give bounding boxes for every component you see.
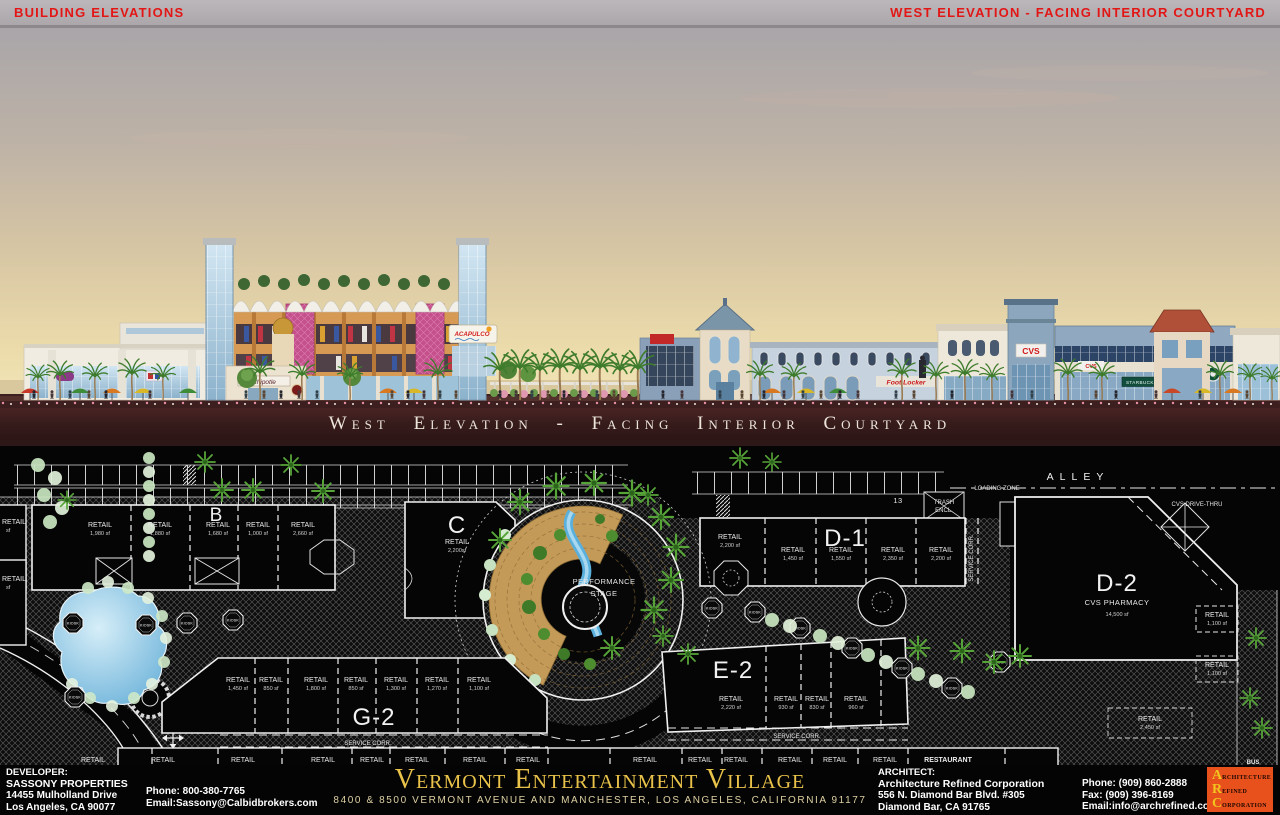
parking-count: 13 [893,496,902,505]
svg-text:1,100 sf: 1,100 sf [1207,621,1227,627]
svg-text:RETAIL: RETAIL [1205,662,1229,669]
svg-text:RETAIL: RETAIL [246,522,270,529]
building-g2 [162,658,548,747]
svg-text:RETAIL: RETAIL [425,677,449,684]
stage-label-2: STAGE [591,589,618,598]
architect-email: Email:info@archrefined.com [1082,801,1218,813]
architect-block: ARCHITECT: Architecture Refined Corporat… [878,767,1044,813]
svg-text:RETAIL: RETAIL [405,757,429,764]
svg-text:2,200sf: 2,200sf [448,548,467,554]
svg-text:930 sf: 930 sf [778,705,794,711]
architect-phone: Phone: (909) 860-2888 [1082,778,1218,790]
svg-text:1,450 sf: 1,450 sf [228,686,248,692]
logo-letter-c: C [1212,796,1222,812]
svg-text:RETAIL: RETAIL [81,757,105,764]
architect-address2: Diamond Bar, CA 91765 [878,802,1044,814]
svg-text:1,800 sf: 1,800 sf [306,686,326,692]
cvs-tower-sign: CVS [1022,346,1040,356]
project-subtitle: 8400 & 8500 VERMONT AVENUE AND MANCHESTE… [330,795,870,807]
red-sign [650,334,674,344]
svg-text:RETAIL: RETAIL [304,677,328,684]
svg-text:RETAIL: RETAIL [1205,612,1229,619]
svg-text:1,270 sf: 1,270 sf [427,686,447,692]
header-left-title: BUILDING ELEVATIONS [14,5,184,20]
svg-text:1,100 sf: 1,100 sf [1207,671,1227,677]
building-b [32,505,354,590]
svg-text:sf: sf [6,528,11,534]
building-d2-label: D-2 [1096,570,1138,597]
alley: ALLEY LOADING ZONE [944,448,1280,497]
svg-text:RETAIL: RETAIL [688,757,712,764]
svg-text:RETAIL: RETAIL [360,757,384,764]
alley-label: ALLEY [1047,471,1110,483]
site-plan: KIOSK 13 [0,440,1280,765]
restaurant-label: RESTAURANT [924,757,972,764]
svg-text:RETAIL: RETAIL [226,677,250,684]
svg-text:ACAPULCO: ACAPULCO [453,331,489,338]
developer-phone: Phone: 800-380-7765 [146,786,317,798]
svg-text:2,200 sf: 2,200 sf [720,543,740,549]
svg-text:850 sf: 850 sf [263,686,279,692]
svg-text:RETAIL: RETAIL [259,677,283,684]
footlocker-sign: Foot Locker [887,380,926,387]
svg-text:RETAIL: RETAIL [445,539,469,546]
svg-text:1,880 sf: 1,880 sf [150,531,170,537]
svg-text:RETAIL: RETAIL [2,576,26,583]
developer-contact-block: Phone: 800-380-7765 Email:Sassony@Calbid… [146,786,317,809]
architect-address1: 556 N. Diamond Bar Blvd. #305 [878,790,1044,802]
drive-thru-label: CVS DRIVE-THRU [1171,502,1222,508]
building-g2-label: G-2 [352,704,395,731]
svg-text:1,550 sf: 1,550 sf [831,556,851,562]
svg-text:1,450 sf: 1,450 sf [783,556,803,562]
svg-text:RETAIL: RETAIL [633,757,657,764]
svg-text:RETAIL: RETAIL [1138,716,1162,723]
loading-zone-label: LOADING ZONE [974,486,1019,492]
project-title-block: Vermont Entertainment Village 8400 & 850… [330,765,870,807]
trash-enclosure: TRASH ENCL. [924,492,964,520]
architect-fax: Fax: (909) 396-8169 [1082,790,1218,802]
svg-text:ENCL.: ENCL. [935,508,953,514]
building-c-label: C [448,512,466,539]
svg-text:2,220 sf: 2,220 sf [721,705,741,711]
svg-text:sf: sf [6,585,11,591]
svg-text:850 sf: 850 sf [348,686,364,692]
svg-text:RETAIL: RETAIL [467,677,491,684]
svg-text:SERVICE CORR.: SERVICE CORR. [773,734,821,740]
svg-text:RETAIL: RETAIL [344,677,368,684]
chipotle-medallion-icon [292,385,303,396]
classical-building [936,324,1012,400]
svg-text:RETAIL: RETAIL [719,696,743,703]
svg-text:RETAIL: RETAIL [463,757,487,764]
service-corridor-label-d1: SERVICE CORR. [969,534,975,582]
svg-text:RETAIL: RETAIL [781,547,805,554]
bottom-retail-row [118,748,1058,765]
developer-email: Email:Sassony@Calbidbrokers.com [146,798,317,810]
architect-heading: ARCHITECT: [878,767,1044,779]
svg-text:2,200 sf: 2,200 sf [931,556,951,562]
svg-text:RETAIL: RETAIL [291,522,315,529]
svg-text:RETAIL: RETAIL [88,522,112,529]
elevation-caption-banner: West Elevation - Facing Interior Courtya… [0,408,1280,440]
svg-text:RETAIL: RETAIL [778,757,802,764]
svg-text:RETAIL: RETAIL [384,677,408,684]
svg-text:RETAIL: RETAIL [516,757,540,764]
d1-plaza-octagon [714,561,748,595]
svg-text:RETAIL: RETAIL [805,696,829,703]
svg-text:SERVICE CORR.: SERVICE CORR. [344,741,392,747]
round-plaza [858,578,906,626]
svg-text:RETAIL: RETAIL [151,757,175,764]
arc-logo: ARCHITECTURE REFINED CORPORATION [1207,767,1273,812]
svg-text:960 sf: 960 sf [848,705,864,711]
svg-text:RETAIL: RETAIL [724,757,748,764]
svg-text:RETAIL: RETAIL [718,534,742,541]
elevation-caption: West Elevation - Facing Interior Courtya… [329,413,951,435]
architect-name: Architecture Refined Corporation [878,779,1044,791]
developer-address2: Los Angeles, CA 90077 [6,802,128,814]
svg-text:RETAIL: RETAIL [823,757,847,764]
svg-text:RETAIL: RETAIL [774,696,798,703]
svg-text:2,660 sf: 2,660 sf [293,531,313,537]
acapulco-sign: ACAPULCO [449,325,497,343]
svg-text:1,980 sf: 1,980 sf [90,531,110,537]
elevation-rendering: ACAPULCO Chipotle [0,28,1280,408]
svg-text:RETAIL: RETAIL [311,757,335,764]
mid-building [640,334,700,400]
svg-text:RETAIL: RETAIL [829,547,853,554]
svg-text:RETAIL: RETAIL [231,757,255,764]
architect-contact-block: Phone: (909) 860-2888 Fax: (909) 396-816… [1082,778,1218,813]
svg-text:RETAIL: RETAIL [148,522,172,529]
building-e2-label: E-2 [713,657,753,684]
developer-block: DEVELOPER: SASSONY PROPERTIES 14455 Mulh… [6,767,128,813]
statue [919,360,926,378]
stage-label-1: PERFORMANCE [573,577,636,586]
header-right-title: WEST ELEVATION - FACING INTERIOR COURTYA… [890,5,1266,20]
developer-address1: 14455 Mulholland Drive [6,790,128,802]
presentation-board: BUILDING ELEVATIONS WEST ELEVATION - FAC… [0,0,1280,815]
developer-name: SASSONY PROPERTIES [6,779,128,791]
svg-text:1,100 sf: 1,100 sf [469,686,489,692]
striped-stall [183,465,196,485]
footer: DEVELOPER: SASSONY PROPERTIES 14455 Mulh… [0,765,1280,815]
svg-text:RETAIL: RETAIL [844,696,868,703]
svg-text:RETAIL: RETAIL [2,519,26,526]
svg-text:2,450 sf: 2,450 sf [1140,725,1160,731]
d2-tenant-label: CVS PHARMACY [1085,598,1150,607]
svg-text:1,680 sf: 1,680 sf [208,531,228,537]
svg-text:1,000 sf: 1,000 sf [248,531,268,537]
svg-text:830 sf: 830 sf [809,705,825,711]
svg-text:RETAIL: RETAIL [929,547,953,554]
project-title: Vermont Entertainment Village [330,765,870,795]
svg-text:TRASH: TRASH [934,500,954,506]
svg-text:RETAIL: RETAIL [881,547,905,554]
developer-heading: DEVELOPER: [6,767,128,779]
d2-size-label: 14,500 sf [1105,612,1128,618]
svg-text:RETAIL: RETAIL [206,522,230,529]
svg-text:RETAIL: RETAIL [873,757,897,764]
header-bar: BUILDING ELEVATIONS WEST ELEVATION - FAC… [0,0,1280,28]
svg-text:2,350 sf: 2,350 sf [883,556,903,562]
svg-text:1,300 sf: 1,300 sf [386,686,406,692]
